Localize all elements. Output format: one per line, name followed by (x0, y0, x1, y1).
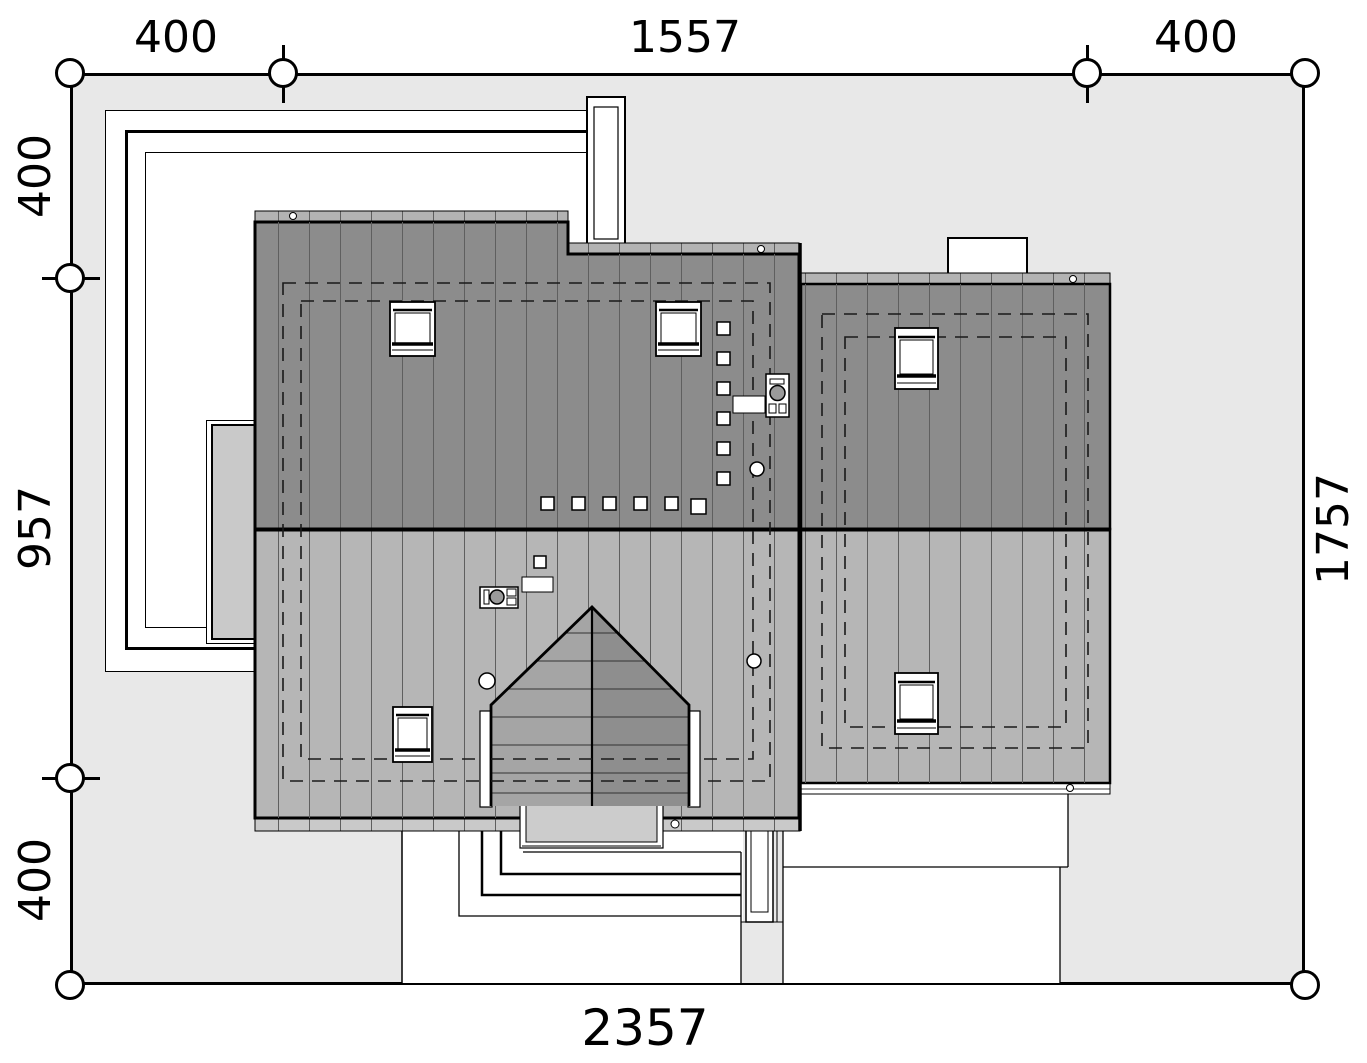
pavement-column (746, 818, 773, 922)
chimney-north-east (948, 238, 1027, 278)
dim-left-lower: 400 (14, 838, 58, 922)
dim-bottom: 2357 (581, 1003, 708, 1053)
chimney-north-west (587, 97, 625, 244)
skylight-1 (390, 302, 435, 356)
skylight-4 (393, 707, 432, 762)
dimension-marker-circle (55, 970, 85, 1000)
skylight-3 (895, 328, 938, 389)
skylight-2 (656, 302, 701, 356)
dim-left-middle: 957 (14, 486, 58, 570)
roof-vent-lower (480, 587, 518, 608)
roof-east-wing (801, 284, 1110, 783)
dim-top-right: 400 (1154, 16, 1238, 60)
site-plan-canvas: 400 1557 400 400 957 400 1757 2357 (0, 0, 1367, 1063)
dim-top-left: 400 (134, 16, 218, 60)
dimension-marker-circle (55, 763, 85, 793)
porch (520, 799, 663, 848)
dimension-marker-circle (1072, 58, 1102, 88)
dimension-marker-circle (55, 58, 85, 88)
roof-hatch-upper (733, 396, 765, 413)
dim-top-center: 1557 (629, 16, 741, 60)
roof-hatch-lower (522, 577, 553, 592)
dimension-marker-circle (55, 263, 85, 293)
roof-vent-upper (766, 374, 789, 417)
roof-plan-drawing (0, 0, 1367, 1063)
dim-right: 1757 (1312, 473, 1356, 585)
skylight-5 (895, 673, 938, 734)
dimension-marker-circle (1290, 970, 1320, 1000)
dim-left-upper: 400 (14, 134, 58, 218)
dimension-marker-circle (268, 58, 298, 88)
dimension-marker-circle (1290, 58, 1320, 88)
